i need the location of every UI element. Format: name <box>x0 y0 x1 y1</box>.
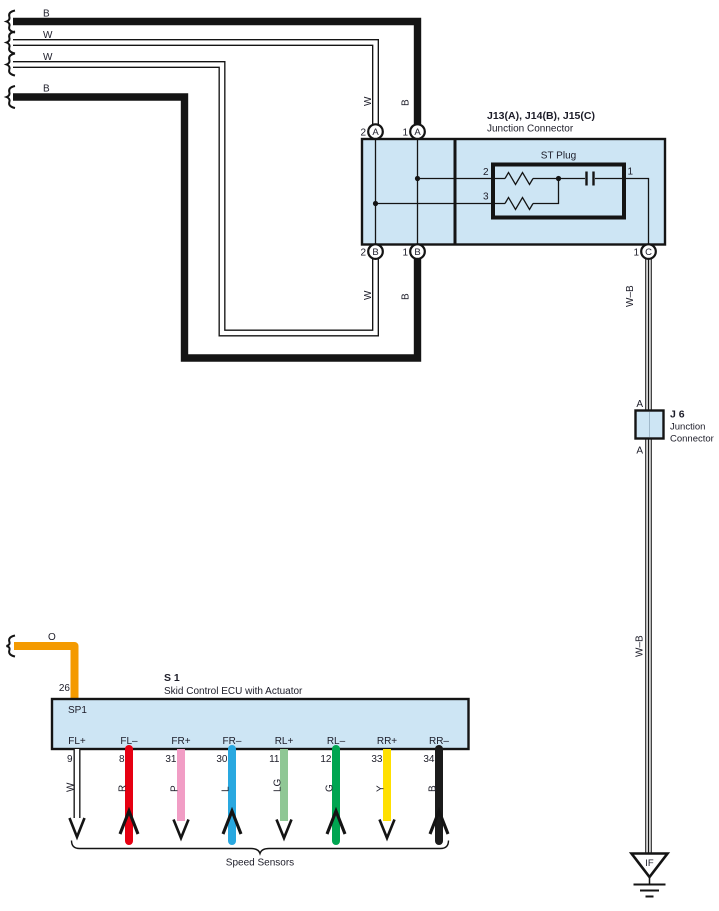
wire-color-code: R <box>118 785 129 792</box>
junction-dot <box>556 176 561 181</box>
pin-number: 2 <box>360 247 366 258</box>
pin-letter: A <box>414 127 421 138</box>
wire-label-vertical: B <box>401 99 412 106</box>
wire-label-vertical: W–B <box>625 285 636 307</box>
wire-color-code: B <box>428 785 439 792</box>
wire-w-top-outline <box>13 43 376 125</box>
wire-color-code: L <box>221 786 232 792</box>
junction-dot <box>373 201 378 206</box>
wire-label-vertical: W <box>363 290 374 300</box>
wire-label-vertical: W <box>363 96 374 106</box>
pin-number: 31 <box>165 754 177 765</box>
wire-color-code: LG <box>273 778 284 792</box>
arrow-down-icon <box>277 820 292 839</box>
pin-number: 12 <box>320 754 332 765</box>
wire-label-vertical: W–B <box>635 635 646 657</box>
ecu-code: S 1 <box>164 672 180 684</box>
wb-ground-wire: W–B W–B <box>625 259 649 853</box>
st-pin-number: 2 <box>483 167 489 178</box>
wire-w-loop-core <box>13 65 376 334</box>
harness-top: B W W B W B W B <box>7 9 418 359</box>
pin-number: 33 <box>371 754 383 765</box>
pin-number: 11 <box>269 754 280 765</box>
ecu-splice-label: SP1 <box>68 705 87 716</box>
pin-1b: B 1 <box>402 244 424 259</box>
sensor-wire-fl-minus: 8 R <box>118 749 139 841</box>
arrow-down-icon <box>174 820 189 839</box>
wire-color-code: W <box>66 782 77 792</box>
wire-w-loop-outline <box>13 65 376 334</box>
pin-1a: A 1 <box>402 124 424 139</box>
pin-number: 8 <box>119 754 125 765</box>
wire-color-code: Y <box>376 785 387 792</box>
junction-connector-box <box>362 139 665 245</box>
pin-letter: A <box>372 127 379 138</box>
pin-number: 2 <box>360 127 366 138</box>
wire-color-code: P <box>170 785 181 792</box>
pin-letter: B <box>372 247 378 258</box>
ecu-box <box>52 699 469 749</box>
ground-bars-icon <box>634 885 666 897</box>
wiring-diagram-page: B W W B W B W B W–B W–B J13(A), J14(B), … <box>0 0 719 906</box>
sensor-wires: 9 W 8 R 31 P 30 L 11 <box>66 749 449 841</box>
j6-type-line2: Connector <box>670 434 714 445</box>
wire-label: W <box>43 52 53 63</box>
st-pin-number: 3 <box>483 192 489 203</box>
pin-number: 26 <box>59 683 71 694</box>
junction-connector-title: J13(A), J14(B), J15(C) <box>487 110 595 122</box>
sensor-wire-rr-minus: 34 B <box>423 749 448 841</box>
sensor-wire-rl-minus: 12 G <box>320 749 345 841</box>
wire-label: W <box>43 30 53 41</box>
pin-letter: B <box>414 247 420 258</box>
st-pin-number: 1 <box>628 167 634 178</box>
wire-w-top-core <box>13 43 376 125</box>
pin-number: 9 <box>67 754 73 765</box>
j6-pin-letter: A <box>636 399 643 410</box>
ground: IF <box>632 854 668 897</box>
pin-2a: A 2 <box>360 124 382 139</box>
pin-2b: B 2 <box>360 244 382 259</box>
pin-number: 34 <box>423 754 435 765</box>
wiring-diagram: B W W B W B W B W–B W–B J13(A), J14(B), … <box>0 0 719 906</box>
skid-control-ecu: S 1 Skid Control ECU with Actuator SP1 F… <box>52 672 469 749</box>
wire-b-top <box>13 22 418 125</box>
j6-type-line1: Junction <box>670 422 705 433</box>
sensor-wire-fl-plus: 9 W <box>66 749 85 837</box>
sensor-wire-rr-plus: 33 Y <box>371 749 394 838</box>
wire-b-loop <box>13 97 418 358</box>
wire-break-icon <box>7 636 16 657</box>
ecu-pin-label: RR+ <box>377 736 397 747</box>
speed-sensors-label: Speed Sensors <box>226 858 294 869</box>
pin-number: 1 <box>402 127 408 138</box>
ecu-pin-label: RL+ <box>275 736 294 747</box>
wire-label-vertical: B <box>401 293 412 300</box>
wire-label: B <box>43 9 50 20</box>
ecu-feed: O 26 <box>7 632 75 699</box>
pin-1c: C 1 <box>633 244 655 259</box>
j6-pin-letter: A <box>636 446 643 457</box>
wire-label: B <box>43 84 50 95</box>
junction-connector-j13-j14-j15: J13(A), J14(B), J15(C) Junction Connecto… <box>360 110 665 259</box>
junction-dot <box>415 176 420 181</box>
ecu-pin-label: FR+ <box>171 736 190 747</box>
junction-connector-subtitle: Junction Connector <box>487 124 574 135</box>
wire-color-code: G <box>325 784 336 792</box>
pin-letter: C <box>645 247 652 258</box>
arrow-down-icon <box>380 820 395 839</box>
arrow-down-icon <box>70 818 85 837</box>
pin-number: 30 <box>216 754 228 765</box>
j6-name: J 6 <box>670 409 685 421</box>
wire-label: O <box>48 632 56 643</box>
sensor-wire-fr-minus: 30 L <box>216 749 241 841</box>
sensor-wire-rl-plus: 11 LG <box>269 749 291 838</box>
ecu-pin-label: FL+ <box>68 736 86 747</box>
sensor-wire-fr-plus: 31 P <box>165 749 188 838</box>
pin-number: 1 <box>633 247 639 258</box>
pin-number: 1 <box>402 247 408 258</box>
ecu-description: Skid Control ECU with Actuator <box>164 686 303 697</box>
ground-code: IF <box>645 858 654 869</box>
st-plug-title: ST Plug <box>541 151 576 162</box>
